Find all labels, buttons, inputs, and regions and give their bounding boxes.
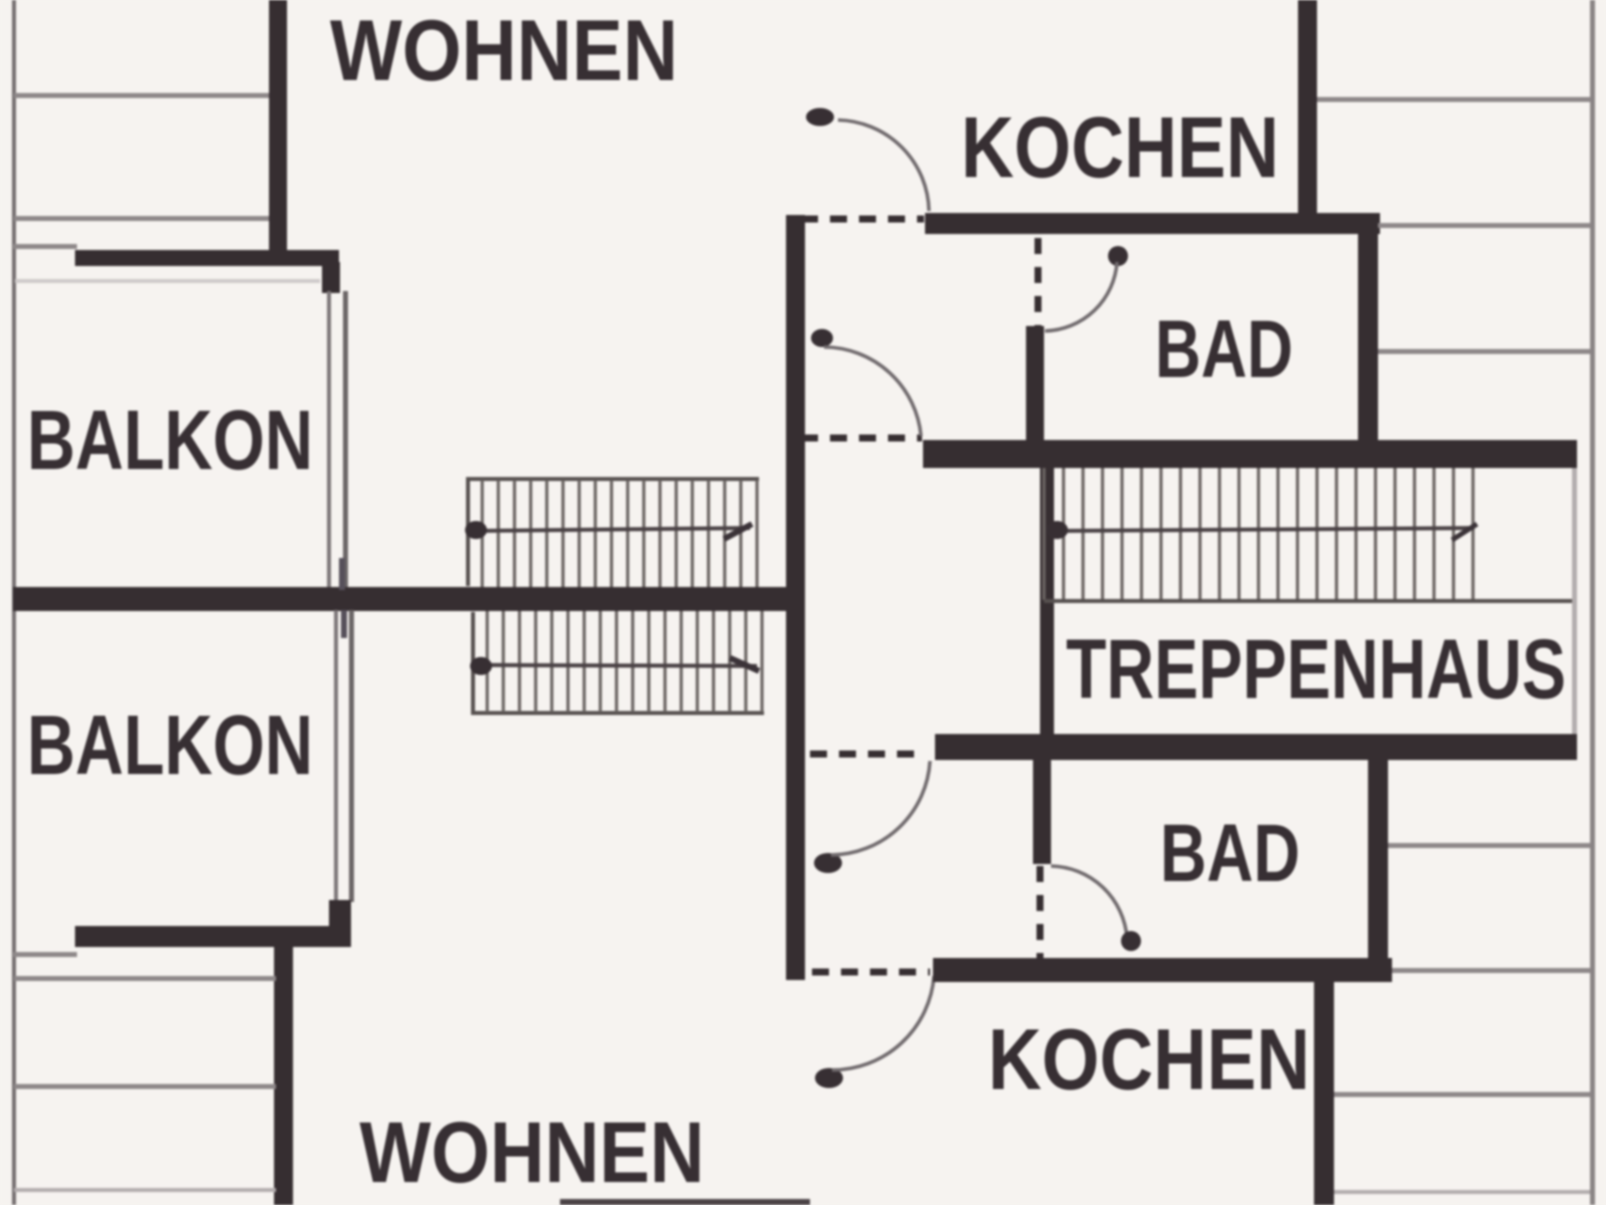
svg-text:KOCHEN: KOCHEN <box>961 100 1279 196</box>
svg-text:BALKON: BALKON <box>27 393 313 487</box>
svg-text:WOHNEN: WOHNEN <box>360 1105 705 1201</box>
svg-text:WOHNEN: WOHNEN <box>330 3 678 99</box>
svg-text:BAD: BAD <box>1155 304 1293 395</box>
svg-text:KOCHEN: KOCHEN <box>988 1012 1310 1108</box>
svg-text:TREPPENHAUS: TREPPENHAUS <box>1066 622 1566 716</box>
svg-text:BAD: BAD <box>1160 808 1300 899</box>
svg-text:BALKON: BALKON <box>27 698 313 792</box>
